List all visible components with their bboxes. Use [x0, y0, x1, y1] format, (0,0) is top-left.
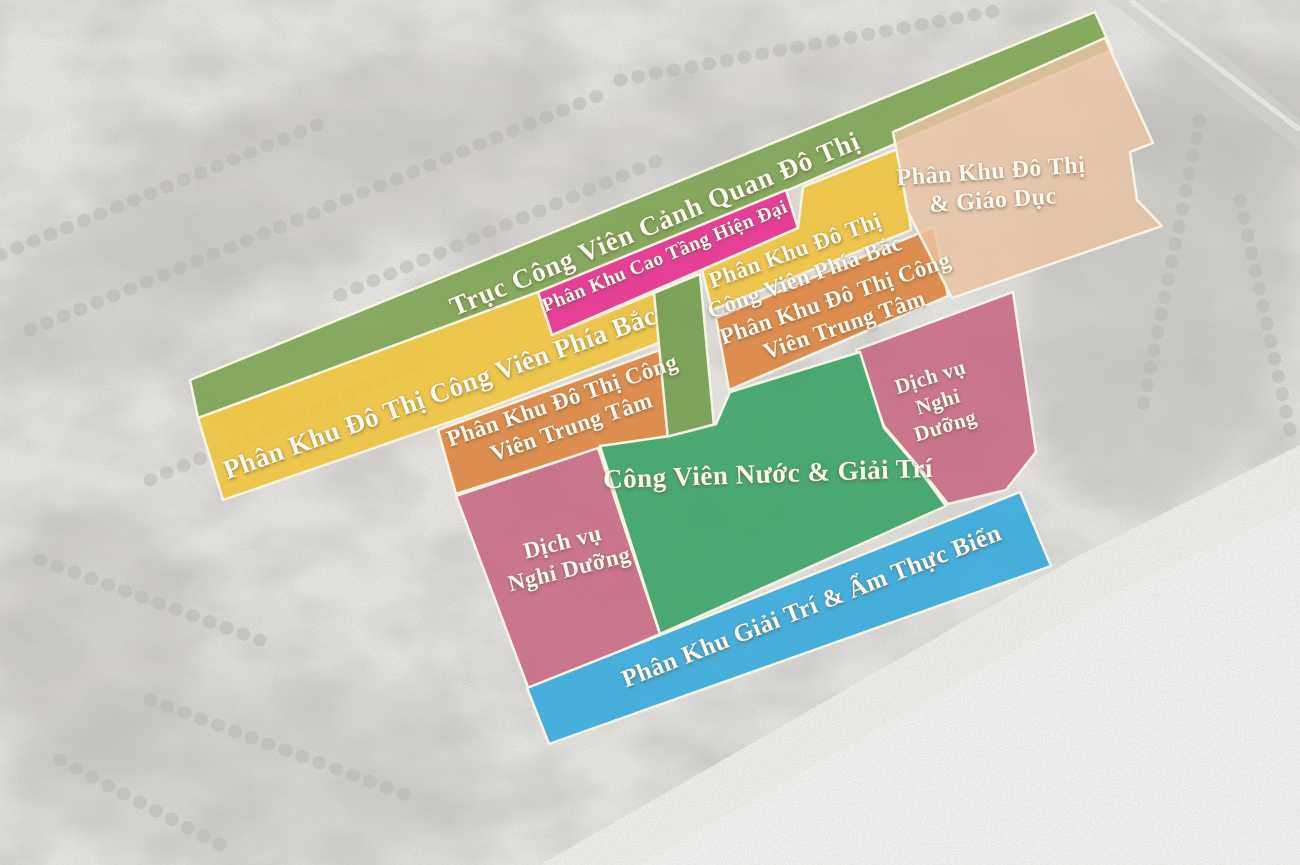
map-canvas [0, 0, 1300, 865]
master-plan-map: Trục Công Viên Cảnh Quan Đô Thị Phân Khu… [0, 0, 1300, 865]
